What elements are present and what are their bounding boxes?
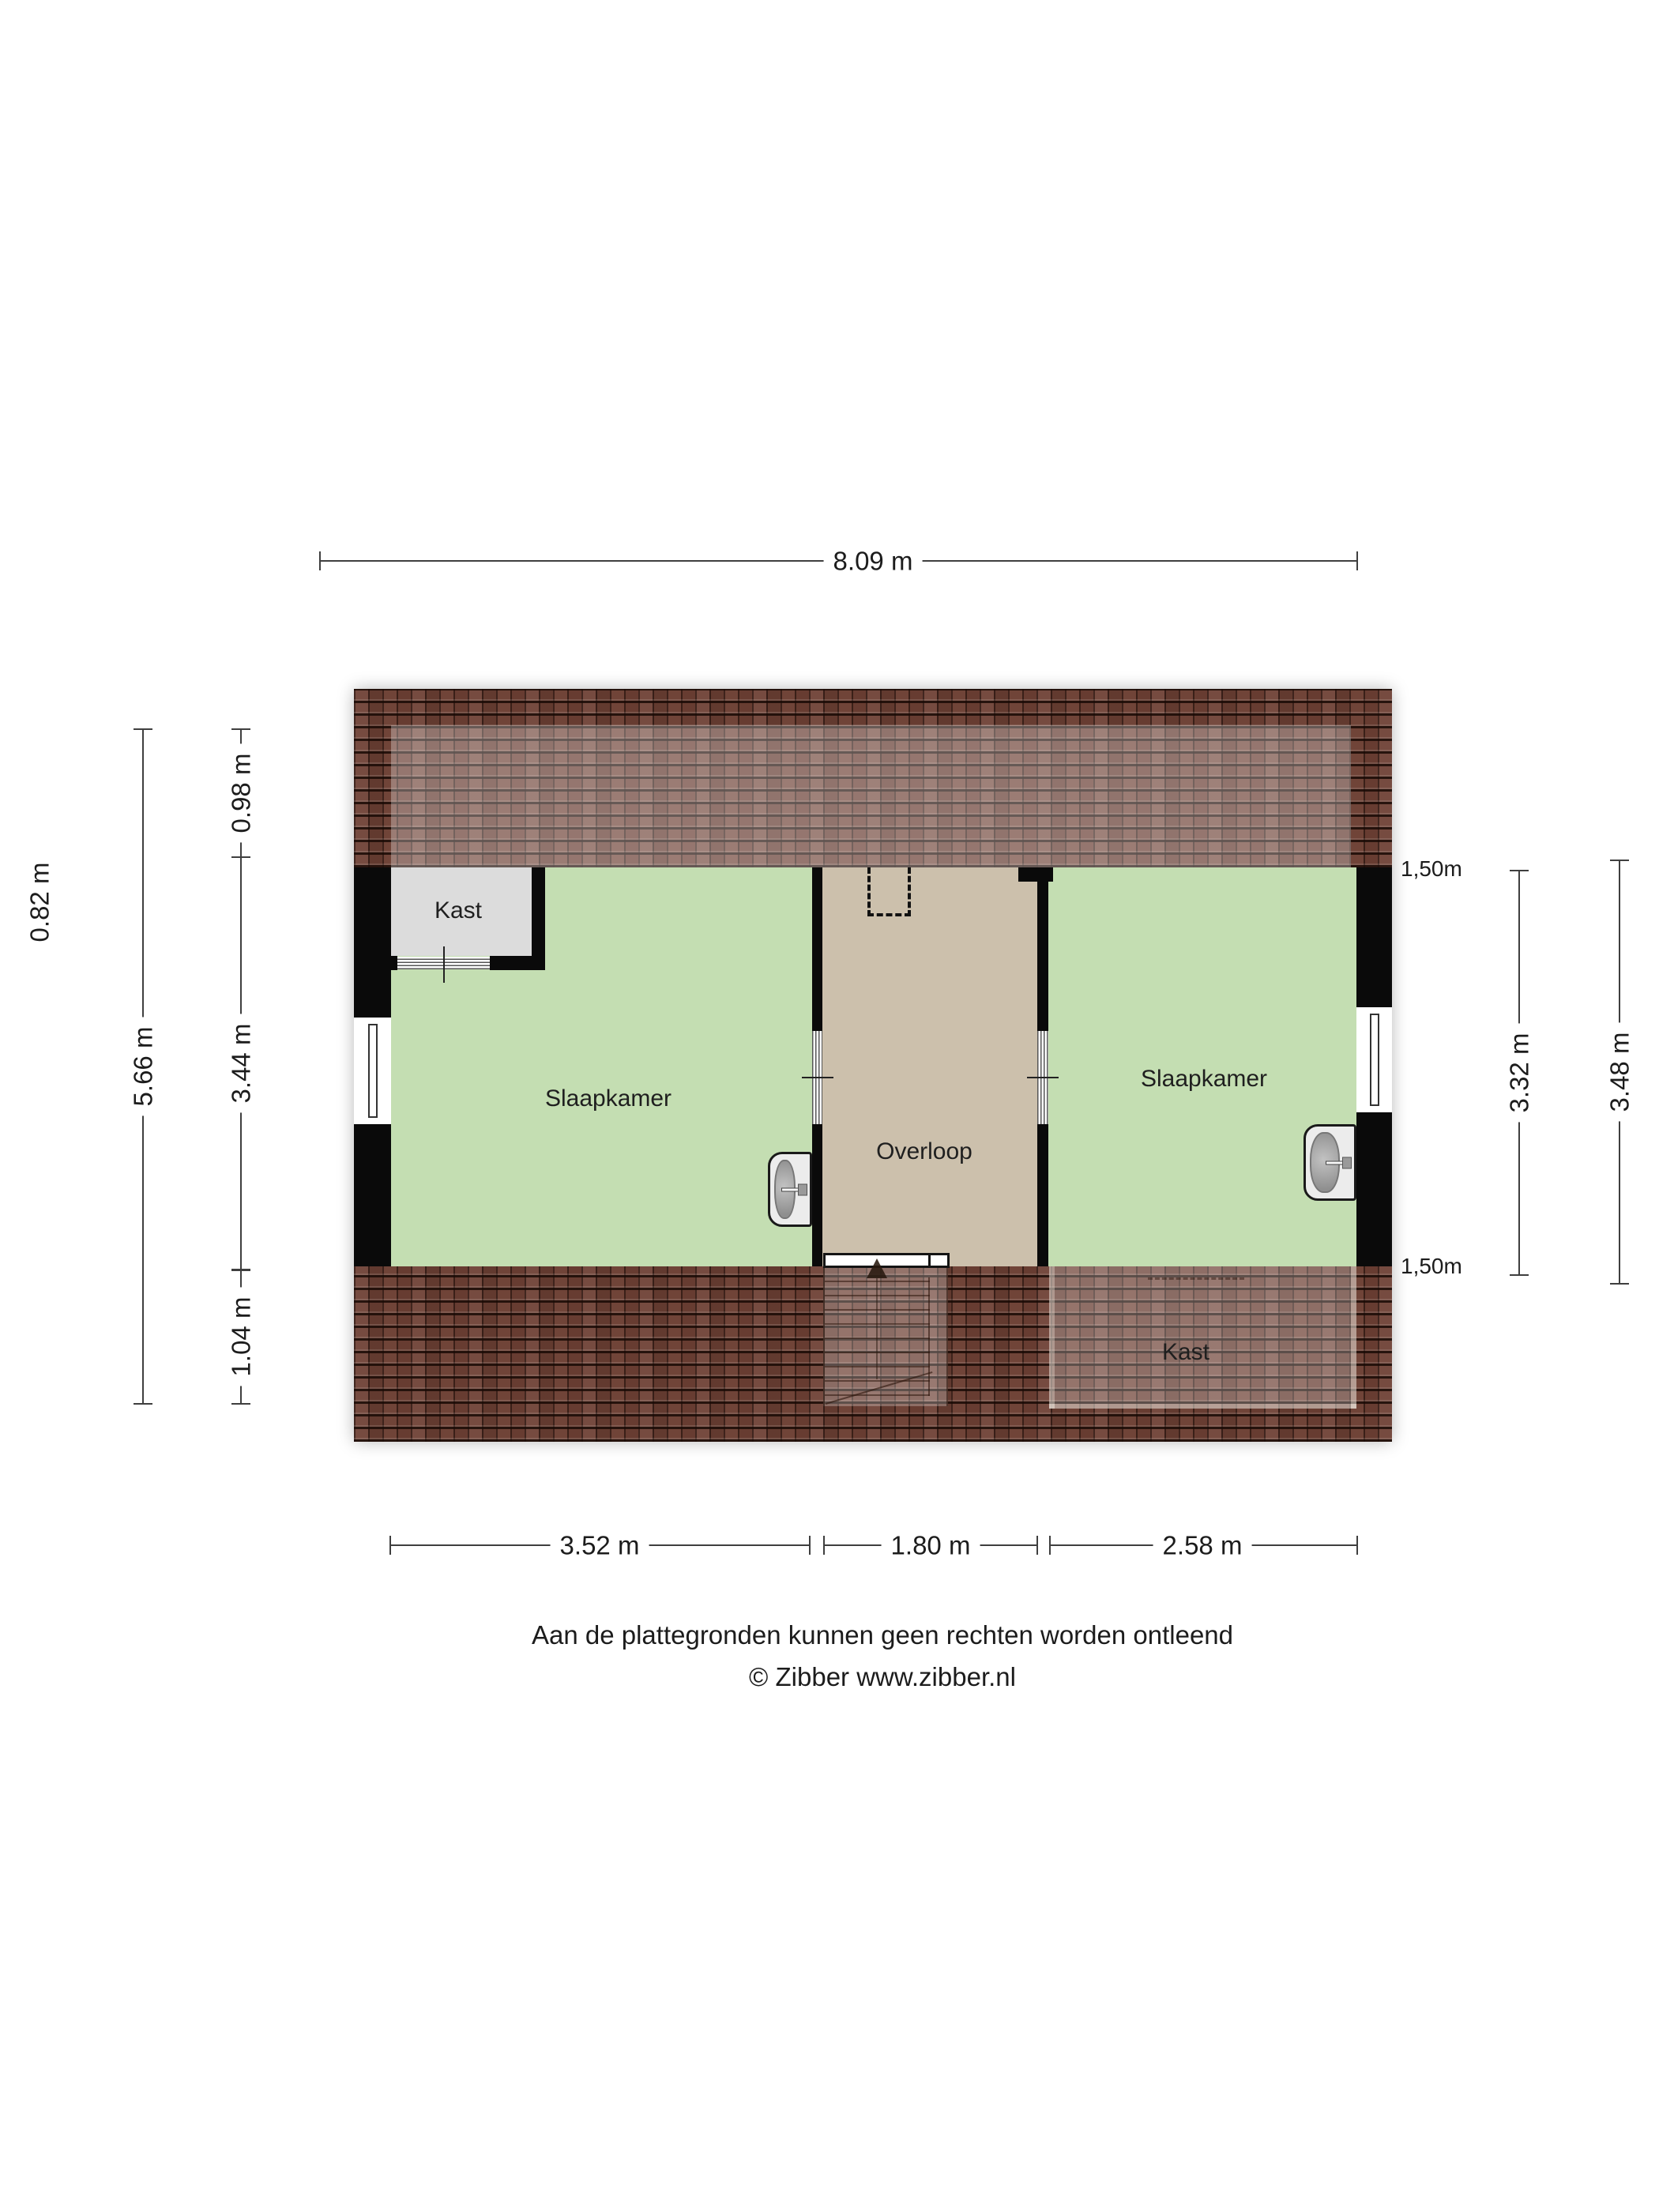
dim-cap [1036, 1536, 1038, 1555]
room-label-slaapkamer-left: Slaapkamer [545, 1087, 671, 1111]
room-overloop-floor [822, 867, 1037, 1266]
room-label-slaapkamer-right: Slaapkamer [1141, 1067, 1267, 1091]
room-label-kast-top: Kast [434, 899, 482, 923]
window-glass [368, 1024, 378, 1118]
sink-icon [1303, 1124, 1356, 1201]
stairs-arrow-stem [876, 1278, 878, 1379]
dim-label-left-seg3: 1.04 m [224, 1288, 259, 1386]
footer-disclaimer: Aan de plattegronden kunnen geen rechten… [532, 1622, 1233, 1648]
dim-cap [1610, 860, 1629, 861]
dim-cap [134, 1403, 152, 1405]
exterior-wall-right-upper [1356, 867, 1392, 1007]
floorplan-drawing: Kast Slaapkamer Overloop Slaapkamer Kast [354, 689, 1392, 1442]
window-left-icon [354, 1018, 391, 1124]
dim-label-right-inner: 3.32 m [1502, 1024, 1537, 1123]
footer-credit: © Zibber www.zibber.nl [749, 1664, 1016, 1690]
dim-label-left-total: 5.66 m [126, 1018, 161, 1116]
window-right-icon [1356, 1007, 1392, 1112]
kast-bottom-overlay [1055, 1266, 1351, 1404]
dim-label-headroom-top: 1,50m [1401, 858, 1462, 880]
kast-bottom-wall-right-faint [1351, 1266, 1356, 1409]
room-label-kast-bottom: Kast [1162, 1341, 1209, 1364]
kast-right-wall [532, 867, 545, 970]
door-tick [1027, 1077, 1059, 1078]
exterior-wall-right-lower [1356, 1112, 1392, 1266]
door-tick [802, 1077, 833, 1078]
dim-cap [134, 728, 152, 730]
kast-bottom-wall-left [391, 956, 397, 970]
dim-label-bottom-2: 1.80 m [882, 1528, 980, 1563]
kast-door-tick [443, 946, 445, 983]
dim-cap [1356, 551, 1358, 570]
dim-label-bottom-3: 2.58 m [1153, 1528, 1252, 1563]
dim-cap [231, 1403, 250, 1405]
stair-landing-divider [928, 1253, 931, 1268]
wall-stub-top [1018, 867, 1053, 882]
dim-label-bottom-1: 3.52 m [551, 1528, 649, 1563]
overloop-left-wall-lower [812, 1124, 822, 1266]
sink-icon [768, 1152, 812, 1227]
kast-bottom-wall-left-faint [1049, 1266, 1055, 1409]
dim-cap [1610, 1283, 1629, 1285]
dim-cap [231, 728, 250, 730]
exterior-wall-left-upper [354, 867, 391, 1018]
kast-bottom-wall-bottom-faint [1049, 1404, 1356, 1409]
overloop-right-wall-upper [1037, 867, 1048, 1031]
dim-cap [809, 1536, 811, 1555]
dim-cap [1049, 1536, 1051, 1555]
roof-headroom-overlay-top [391, 725, 1351, 867]
dim-label-left-seg2: 3.44 m [224, 1014, 259, 1113]
dim-cap [1510, 1274, 1529, 1276]
dim-cap [319, 551, 321, 570]
floorplan-page: 8.09 m 0.82 m 5.66 m 0.98 m 3.44 m 1.04 … [0, 0, 1659, 2212]
kast-bottom-dashed-line [1148, 1277, 1244, 1280]
dim-cap [823, 1536, 825, 1555]
overloop-right-wall-lower [1037, 1124, 1048, 1266]
overloop-left-wall-upper [812, 867, 822, 1031]
sink-faucet-handle [798, 1183, 807, 1195]
dim-label-top-width: 8.09 m [824, 544, 923, 579]
stairs-up-arrow-icon [867, 1258, 887, 1278]
dim-cap [231, 1270, 250, 1271]
dim-cap [1356, 1536, 1358, 1555]
dim-label-left-eave: 0.82 m [22, 853, 58, 952]
dim-label-left-seg1: 0.98 m [224, 744, 259, 843]
exterior-wall-left-lower [354, 1124, 391, 1266]
room-label-overloop: Overloop [876, 1140, 972, 1164]
dim-label-right-outer: 3.48 m [1602, 1023, 1638, 1122]
kast-bottom-wall-right [490, 956, 545, 970]
dim-cap [1510, 870, 1529, 871]
sink-faucet-handle [1342, 1157, 1352, 1168]
window-glass [1370, 1014, 1379, 1106]
dim-label-headroom-bottom: 1,50m [1401, 1255, 1462, 1277]
dim-cap [389, 1536, 391, 1555]
skylight-dashed-outline-icon [867, 867, 911, 916]
